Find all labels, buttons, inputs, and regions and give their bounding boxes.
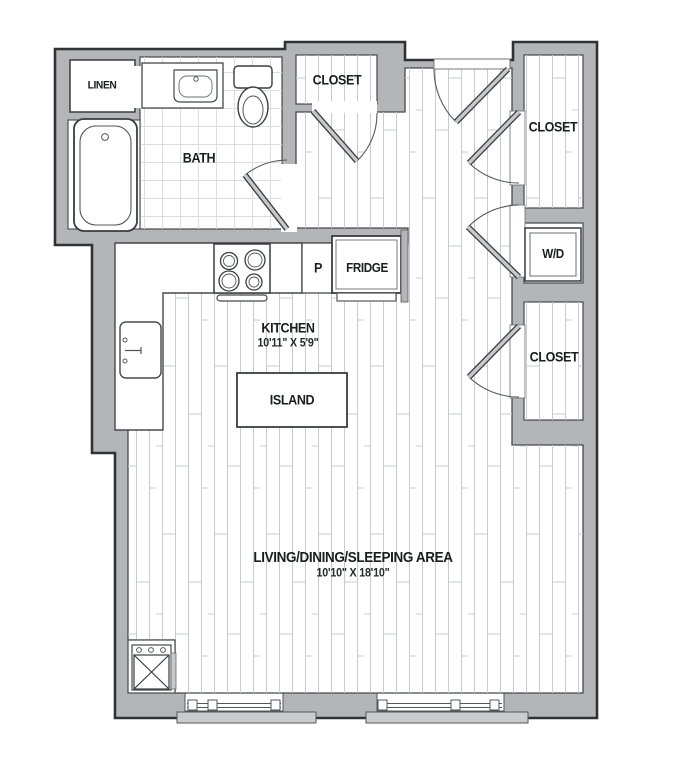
wall-tab: [401, 230, 408, 302]
pantry-cabinet: [302, 243, 334, 293]
toilet-icon: [234, 66, 272, 127]
hvac-unit-icon: [128, 640, 176, 693]
fridge-box: [332, 236, 401, 301]
bathroom-sink-icon: [142, 63, 223, 108]
kitchen-sink-icon: [120, 322, 161, 378]
window-bay-right: [377, 692, 504, 711]
window-bay-left: [185, 692, 283, 711]
linen-closet: [70, 60, 135, 112]
island-box: [237, 373, 347, 427]
stove-icon: [214, 244, 270, 301]
floorplan: LINEN BATH CLOSET CLOSET W/D CLOSET P FR…: [0, 0, 692, 768]
floorplan-drawing: [0, 0, 692, 768]
bathtub-icon: [74, 119, 137, 231]
washer-dryer-box: [525, 228, 581, 281]
